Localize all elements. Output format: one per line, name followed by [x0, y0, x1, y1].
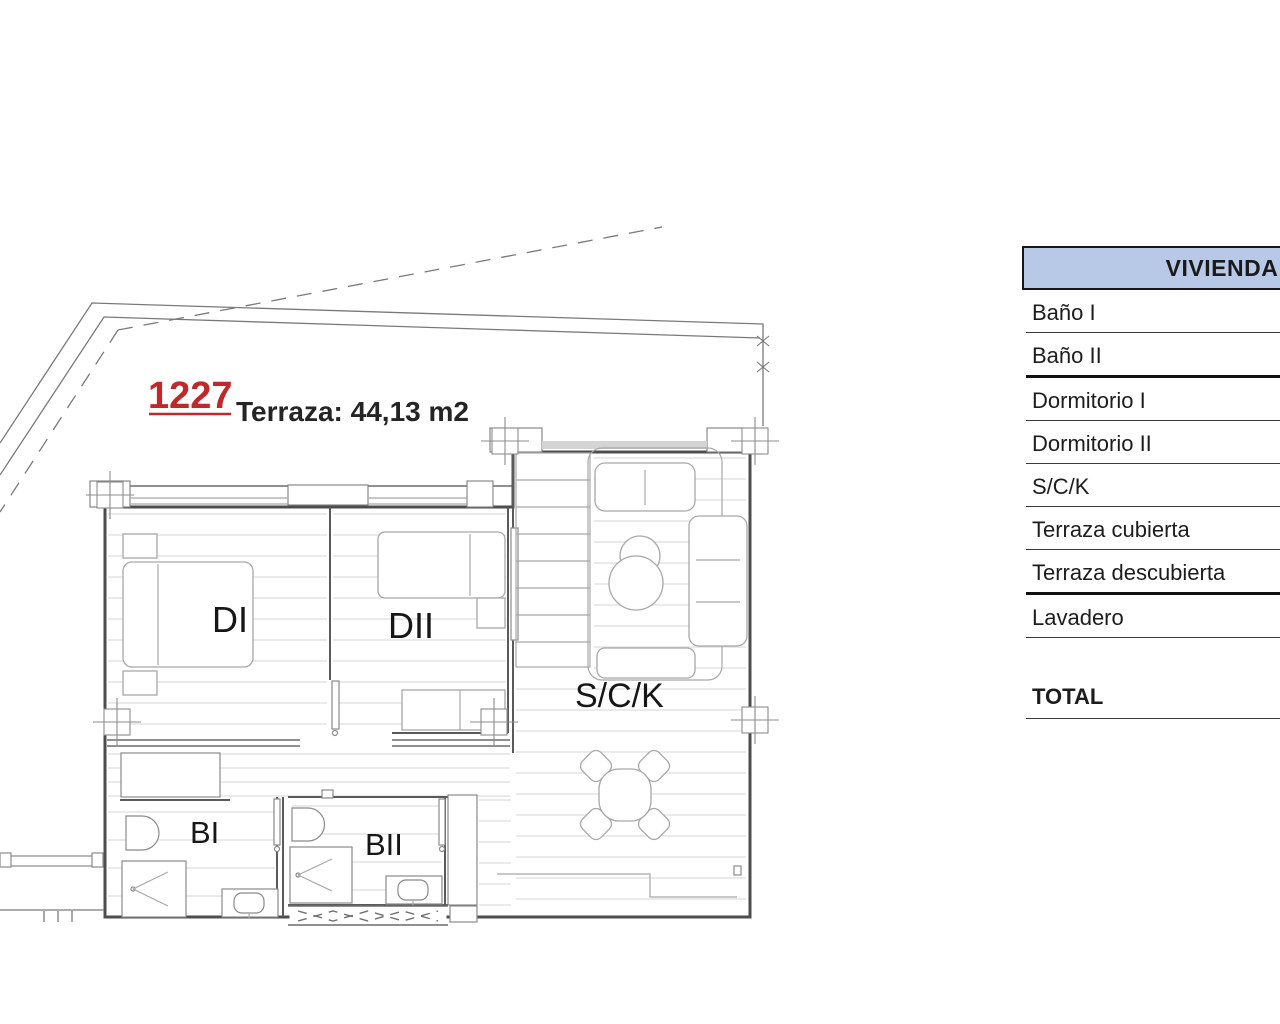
survey-cross: [93, 698, 141, 746]
row-label: S/C/K: [1026, 474, 1089, 506]
table-row: S/C/K: [1026, 464, 1280, 507]
nightstand: [477, 598, 505, 628]
table-row: Dormitorio II: [1026, 421, 1280, 464]
room-label-di: DI: [212, 599, 248, 640]
row-label: Baño I: [1026, 300, 1096, 332]
terrace-annotation: 1227 Terraza: 44,13 m2: [148, 375, 469, 427]
table-row: Dormitorio I: [1026, 378, 1280, 421]
sofa: [689, 516, 747, 646]
table-row: Baño II: [1026, 333, 1280, 378]
row-label: Terraza cubierta: [1026, 517, 1190, 549]
room-label-bii: BII: [365, 827, 403, 862]
table-row: Terraza cubierta: [1026, 507, 1280, 550]
row-label: Lavadero: [1026, 605, 1124, 637]
survey-cross: [731, 696, 779, 744]
hall-wardrobe: [121, 753, 220, 797]
table-row: Terraza descubierta: [1026, 550, 1280, 595]
row-label: Dormitorio II: [1026, 431, 1152, 463]
duct-shaft: [448, 795, 477, 905]
bath1-door-leaf: [274, 799, 280, 845]
unit-number-label: 1227: [148, 375, 233, 417]
table-total-row: TOTAL: [1026, 652, 1280, 719]
table-rows: Baño I Baño II Dormitorio I Dormitorio I…: [1026, 290, 1280, 719]
table-header-label: VIVIENDA: [1166, 255, 1279, 282]
sofa-bench: [597, 648, 695, 678]
row-label: Dormitorio I: [1026, 388, 1146, 420]
survey-cross: [86, 471, 134, 519]
room-label-dii: DII: [388, 605, 434, 646]
dining-table: [599, 769, 651, 821]
single-bed: [378, 532, 505, 598]
nightstand: [123, 671, 157, 695]
room-summary-table: VIVIENDA Baño I Baño II Dormitorio I Dor…: [1022, 246, 1280, 719]
row-label: Baño II: [1026, 343, 1102, 375]
row-label: Terraza descubierta: [1026, 560, 1225, 592]
room-label-sck: S/C/K: [575, 677, 664, 715]
floor-hatch-lavadero: [479, 800, 511, 905]
toilet: [292, 808, 325, 841]
total-label: TOTAL: [1026, 684, 1103, 718]
bedroom-door-leaf: [332, 681, 339, 729]
table-row: Baño I: [1026, 290, 1280, 333]
nightstand: [123, 534, 157, 558]
living-furniture: [588, 448, 747, 680]
outside-planter: [0, 853, 104, 922]
dining-set: [578, 748, 673, 843]
table-header: VIVIENDA: [1022, 246, 1280, 290]
toilet: [126, 816, 159, 850]
side-table: [609, 556, 663, 610]
sliding-door-leaf: [511, 528, 518, 640]
room-label-bi: BI: [190, 815, 219, 850]
bath2-door-leaf: [439, 799, 445, 845]
table-row: Lavadero: [1026, 595, 1280, 638]
survey-cross: [481, 417, 529, 465]
terrace-area-label: Terraza: 44,13 m2: [236, 396, 469, 427]
